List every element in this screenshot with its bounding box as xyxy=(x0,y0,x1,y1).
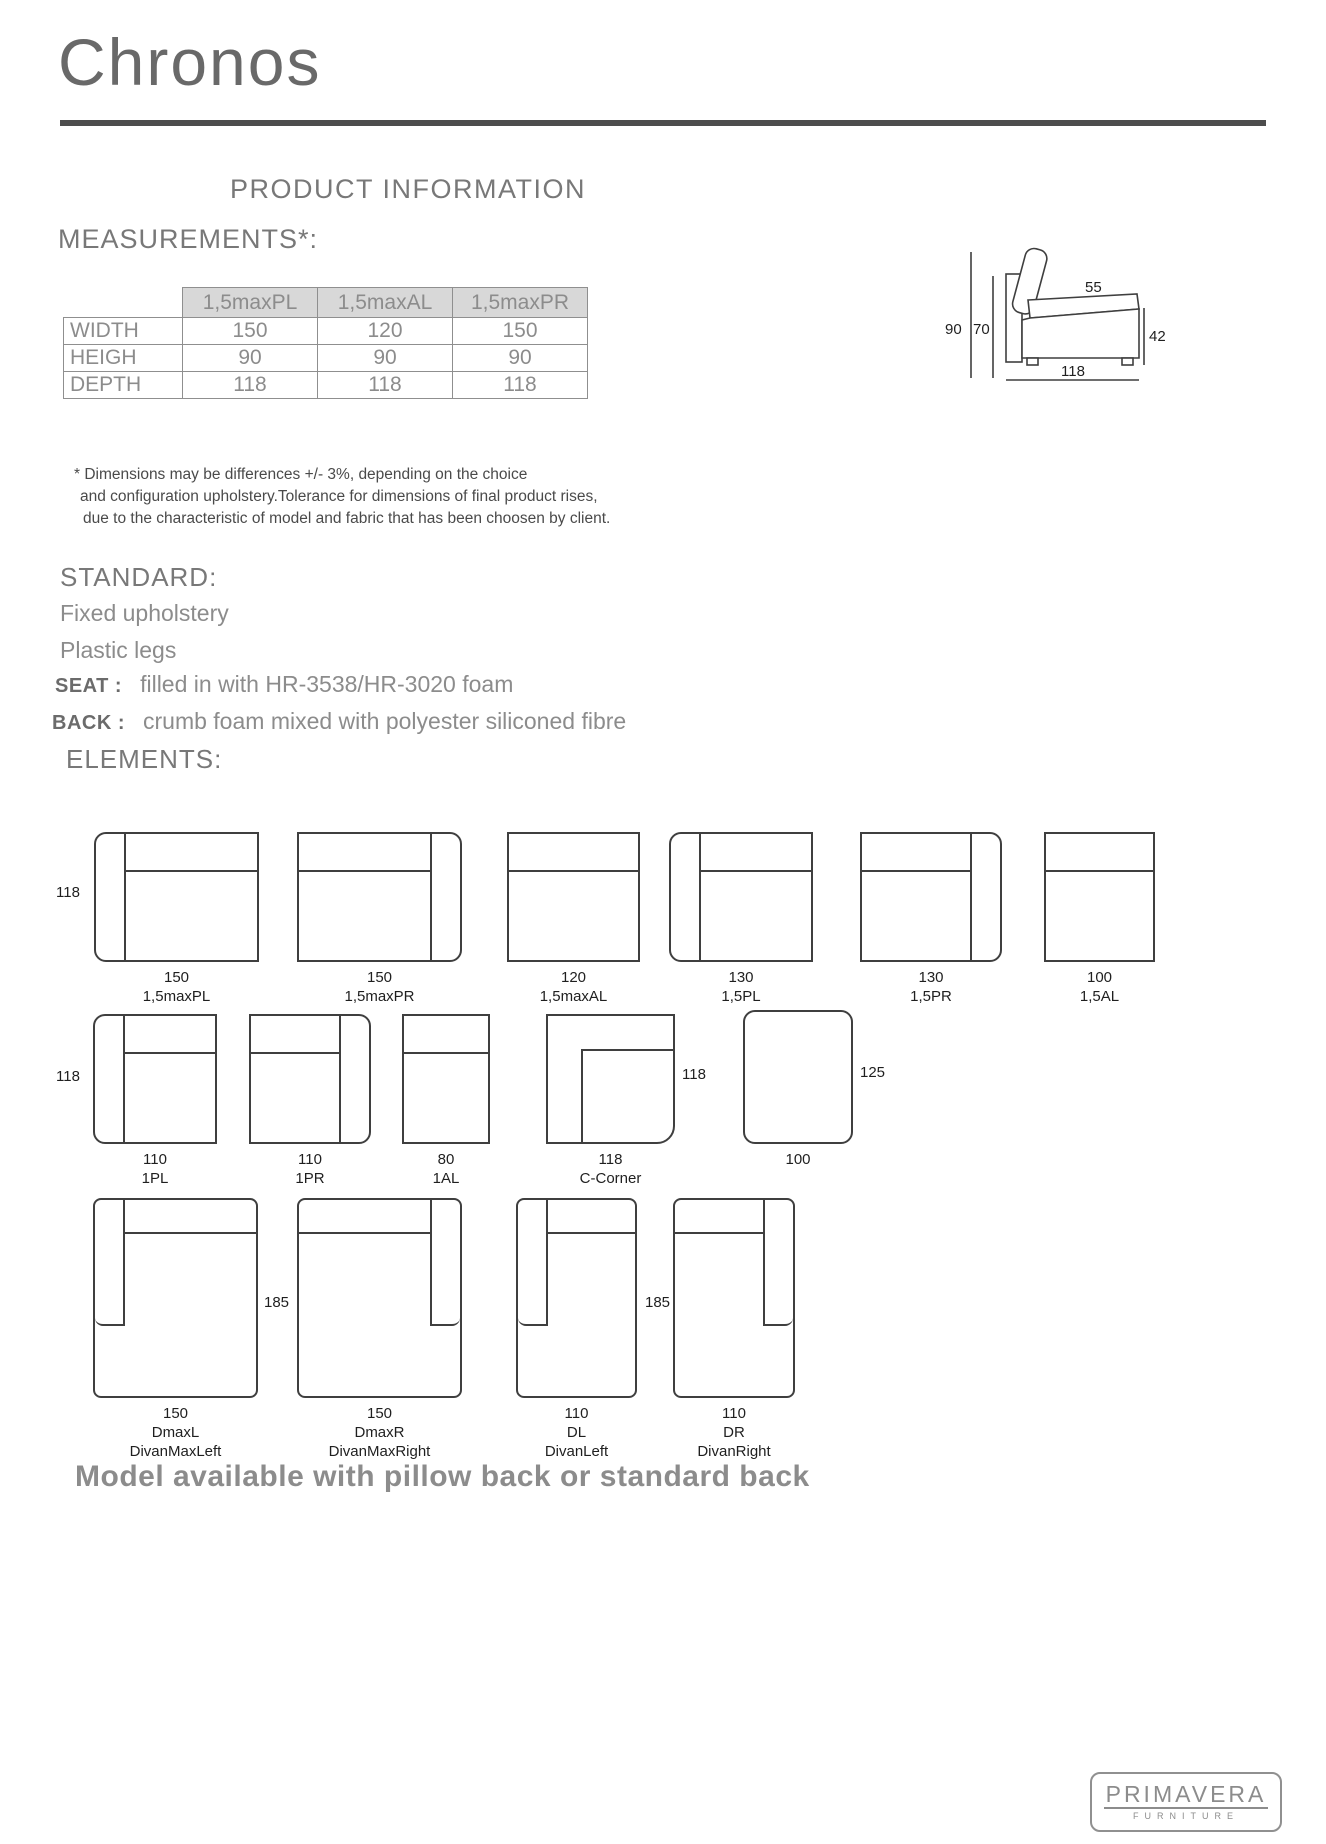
corner-side-dimension-label: 118 xyxy=(682,1066,706,1083)
element-box xyxy=(402,1014,490,1144)
element-code-label: DR xyxy=(673,1424,795,1443)
dim-seat-height: 70 xyxy=(973,321,990,338)
disclaimer-line: * Dimensions may be differences +/- 3%, … xyxy=(74,464,610,486)
backrest-line xyxy=(251,1052,341,1054)
brand-logo: PRIMAVERA FURNITURE xyxy=(1090,1772,1282,1832)
element-box xyxy=(743,1010,853,1144)
header-divider xyxy=(60,120,1266,126)
dim-total-depth: 118 xyxy=(1061,363,1085,380)
backrest-line xyxy=(299,1232,432,1234)
table-cell: 120 xyxy=(318,318,453,345)
table-cell: 118 xyxy=(453,372,588,399)
backrest-line xyxy=(124,870,257,872)
logo-brand-text: PRIMAVERA xyxy=(1104,1783,1269,1809)
table-cell: 90 xyxy=(453,345,588,372)
armrest-shape xyxy=(96,834,126,960)
element-item: 1301,5PR xyxy=(860,832,1002,1007)
element-code-label: DmaxR xyxy=(297,1424,462,1443)
element-width-label: 110 xyxy=(249,1151,371,1170)
section-heading-product-information: PRODUCT INFORMATION xyxy=(230,174,586,205)
element-width-label: 130 xyxy=(860,969,1002,988)
back-value: crumb foam mixed with polyester silicone… xyxy=(143,708,626,735)
element-box xyxy=(249,1014,371,1144)
table-blank-cell xyxy=(64,288,183,318)
elements-heading: ELEMENTS: xyxy=(66,744,222,775)
page-title: Chronos xyxy=(58,24,321,100)
element-item: 1001,5AL xyxy=(1044,832,1155,1007)
element-box xyxy=(860,832,1002,962)
armrest-shape xyxy=(430,1200,460,1326)
element-width-label: 150 xyxy=(297,969,462,988)
element-width-label: 130 xyxy=(669,969,813,988)
element-box xyxy=(297,832,462,962)
seat-value: filled in with HR-3538/HR-3020 foam xyxy=(140,671,513,698)
dim-arm-height: 42 xyxy=(1149,328,1166,345)
back-label: BACK : xyxy=(52,712,125,735)
armrest-shape xyxy=(518,1200,548,1326)
backrest-line xyxy=(862,870,972,872)
armrest-shape xyxy=(671,834,701,960)
divan-length-dimension-label: 185 xyxy=(264,1294,289,1311)
element-item-corner: 118C-Corner xyxy=(546,1014,675,1189)
dimensions-disclaimer: * Dimensions may be differences +/- 3%, … xyxy=(74,464,610,530)
table-row-label: WIDTH xyxy=(64,318,183,345)
standard-heading: STANDARD: xyxy=(60,562,217,593)
backrest-line xyxy=(404,1052,488,1054)
table-row: DEPTH 118 118 118 xyxy=(64,372,588,399)
element-width-label: 150 xyxy=(297,1405,462,1424)
element-item-divan: 150DmaxLDivanMaxLeft xyxy=(93,1198,258,1461)
element-code-label: 1PR xyxy=(249,1170,371,1189)
corner-seat-shape xyxy=(581,1049,673,1142)
element-item: 1101PL xyxy=(93,1014,217,1189)
element-code-label: 1,5PL xyxy=(669,988,813,1007)
element-code-label: 1,5PR xyxy=(860,988,1002,1007)
element-box xyxy=(93,1014,217,1144)
table-cell: 90 xyxy=(318,345,453,372)
element-code-label: 1,5maxAL xyxy=(507,988,640,1007)
element-code-label: DL xyxy=(516,1424,637,1443)
backrest-line xyxy=(509,870,638,872)
element-code-label: DmaxL xyxy=(93,1424,258,1443)
table-cell: 118 xyxy=(183,372,318,399)
backrest-line xyxy=(546,1232,635,1234)
element-code-label: 1AL xyxy=(402,1170,490,1189)
element-width-label: 100 xyxy=(1044,969,1155,988)
armrest-shape xyxy=(95,1016,125,1142)
element-width-label: 150 xyxy=(94,969,259,988)
element-box xyxy=(1044,832,1155,962)
dim-seat-depth: 55 xyxy=(1085,279,1102,296)
element-item: 1501,5maxPL xyxy=(94,832,259,1007)
backrest-line xyxy=(699,870,811,872)
table-cell: 118 xyxy=(318,372,453,399)
element-item: 1501,5maxPR xyxy=(297,832,462,1007)
table-row-label: HEIGH xyxy=(64,345,183,372)
table-col-header: 1,5maxPL xyxy=(183,288,318,318)
table-cell: 150 xyxy=(183,318,318,345)
element-code-label: C-Corner xyxy=(546,1170,675,1189)
element-box xyxy=(669,832,813,962)
element-box xyxy=(94,832,259,962)
armrest-shape xyxy=(95,1200,125,1326)
element-item: 1201,5maxAL xyxy=(507,832,640,1007)
backrest-line xyxy=(123,1232,256,1234)
element-item-divan: 110DRDivanRight xyxy=(673,1198,795,1461)
element-code-label: 1,5maxPR xyxy=(297,988,462,1007)
element-code-label: 1PL xyxy=(93,1170,217,1189)
availability-note: Model available with pillow back or stan… xyxy=(75,1460,810,1494)
disclaimer-line: and configuration upholstery.Tolerance f… xyxy=(74,486,610,508)
disclaimer-line: due to the characteristic of model and f… xyxy=(74,508,610,530)
element-box xyxy=(507,832,640,962)
element-item: 1301,5PL xyxy=(669,832,813,1007)
element-width-label: 118 xyxy=(546,1151,675,1170)
backrest-line xyxy=(1046,870,1153,872)
element-width-label: 110 xyxy=(516,1405,637,1424)
element-item-ottoman: 100 xyxy=(743,1010,853,1170)
element-item: 801AL xyxy=(402,1014,490,1189)
sofa-side-view-diagram: 90 70 42 55 118 xyxy=(925,208,1195,398)
product-sheet-page: Chronos PRODUCT INFORMATION MEASUREMENTS… xyxy=(0,0,1326,1844)
standard-item: Fixed upholstery xyxy=(60,600,229,627)
element-width-label: 80 xyxy=(402,1151,490,1170)
element-item-divan: 110DLDivanLeft xyxy=(516,1198,637,1461)
backrest-line xyxy=(675,1232,765,1234)
element-name-label: DivanLeft xyxy=(516,1443,637,1462)
element-code-label: 1,5AL xyxy=(1044,988,1155,1007)
table-row: WIDTH 150 120 150 xyxy=(64,318,588,345)
element-name-label: DivanRight xyxy=(673,1443,795,1462)
dim-total-height: 90 xyxy=(945,321,962,338)
table-row: HEIGH 90 90 90 xyxy=(64,345,588,372)
divan-length-dimension-label: 185 xyxy=(645,1294,670,1311)
backrest-line xyxy=(299,870,432,872)
table-col-header: 1,5maxAL xyxy=(318,288,453,318)
row1-depth-dimension-label: 118 xyxy=(56,884,80,901)
element-box xyxy=(516,1198,637,1398)
element-item: 1101PR xyxy=(249,1014,371,1189)
element-width-label: 150 xyxy=(93,1405,258,1424)
element-box xyxy=(546,1014,675,1144)
back-spec-line: BACK : crumb foam mixed with polyester s… xyxy=(52,708,626,735)
element-name-label: DivanMaxRight xyxy=(297,1443,462,1462)
table-cell: 150 xyxy=(453,318,588,345)
logo-sub-text: FURNITURE xyxy=(1133,1812,1239,1821)
table-row-label: DEPTH xyxy=(64,372,183,399)
backrest-line xyxy=(123,1052,215,1054)
ottoman-side-dimension-label: 125 xyxy=(860,1064,885,1081)
element-width-label: 110 xyxy=(673,1405,795,1424)
element-box xyxy=(673,1198,795,1398)
table-col-header: 1,5maxPR xyxy=(453,288,588,318)
element-item-divan: 150DmaxRDivanMaxRight xyxy=(297,1198,462,1461)
element-width-label: 100 xyxy=(743,1151,853,1170)
seat-label: SEAT : xyxy=(55,675,122,698)
armrest-shape xyxy=(763,1200,793,1326)
element-width-label: 110 xyxy=(93,1151,217,1170)
measurements-table: 1,5maxPL 1,5maxAL 1,5maxPR WIDTH 150 120… xyxy=(63,287,588,399)
armrest-shape xyxy=(430,834,460,960)
element-width-label: 120 xyxy=(507,969,640,988)
element-name-label: DivanMaxLeft xyxy=(93,1443,258,1462)
table-cell: 90 xyxy=(183,345,318,372)
element-code-label: 1,5maxPL xyxy=(94,988,259,1007)
standard-item: Plastic legs xyxy=(60,637,176,664)
seat-spec-line: SEAT : filled in with HR-3538/HR-3020 fo… xyxy=(55,671,513,698)
armrest-shape xyxy=(970,834,1000,960)
row2-depth-dimension-label: 118 xyxy=(56,1068,80,1085)
armrest-shape xyxy=(339,1016,369,1142)
element-box xyxy=(297,1198,462,1398)
element-box xyxy=(93,1198,258,1398)
measurements-heading: MEASUREMENTS*: xyxy=(58,224,318,255)
